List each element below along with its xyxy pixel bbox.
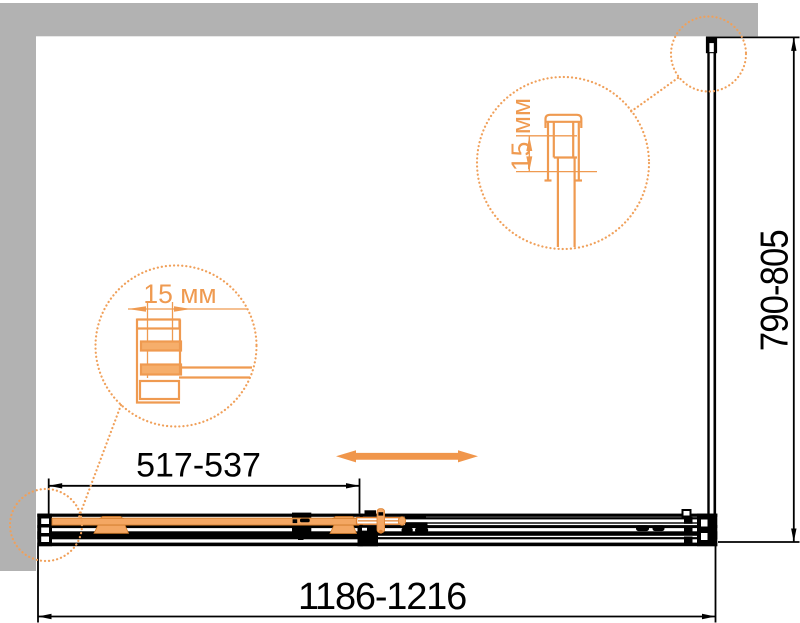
svg-text:15 мм: 15 мм [143, 279, 216, 309]
svg-text:1186-1216: 1186-1216 [298, 576, 466, 618]
svg-text:517-537: 517-537 [136, 447, 261, 485]
svg-text:790-805: 790-805 [753, 230, 796, 351]
